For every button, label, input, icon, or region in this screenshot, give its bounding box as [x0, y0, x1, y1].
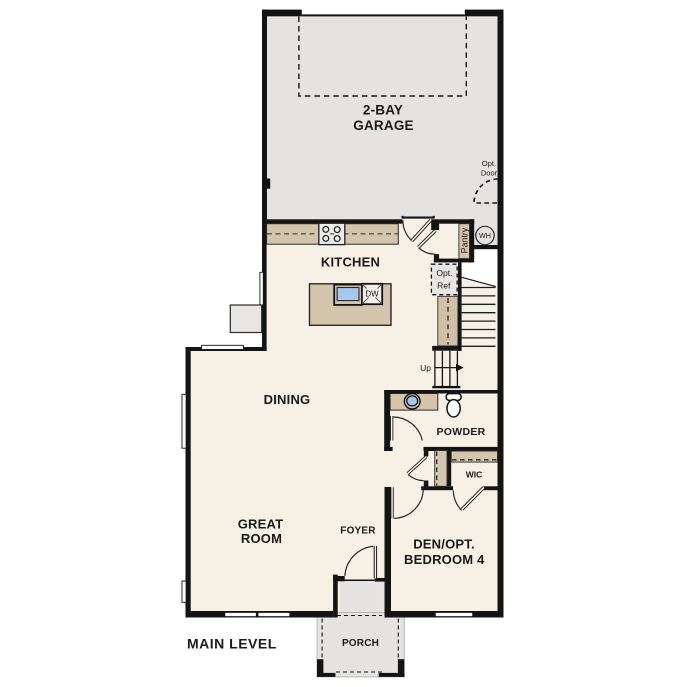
svg-text:DINING: DINING [264, 392, 311, 407]
svg-text:ROOM: ROOM [241, 531, 282, 546]
svg-text:WIC: WIC [466, 469, 483, 479]
svg-text:Opt.: Opt. [482, 159, 496, 168]
svg-text:Opt.: Opt. [436, 268, 452, 278]
svg-text:DEN/OPT.: DEN/OPT. [413, 537, 475, 552]
svg-text:Up: Up [420, 363, 431, 373]
svg-text:Ref: Ref [437, 281, 451, 291]
svg-text:KITCHEN: KITCHEN [321, 255, 380, 270]
svg-text:Pantry: Pantry [459, 227, 469, 253]
svg-text:POWDER: POWDER [436, 426, 485, 438]
svg-text:GARAGE: GARAGE [353, 118, 413, 133]
svg-text:BEDROOM 4: BEDROOM 4 [404, 552, 485, 567]
svg-text:WH: WH [479, 231, 491, 240]
svg-text:Door: Door [481, 169, 498, 178]
svg-text:2-BAY: 2-BAY [363, 103, 403, 118]
svg-text:MAIN LEVEL: MAIN LEVEL [187, 636, 277, 652]
svg-text:PORCH: PORCH [342, 638, 379, 649]
svg-text:FOYER: FOYER [340, 526, 376, 537]
svg-text:GREAT: GREAT [238, 517, 284, 532]
svg-text:DW: DW [365, 290, 379, 299]
